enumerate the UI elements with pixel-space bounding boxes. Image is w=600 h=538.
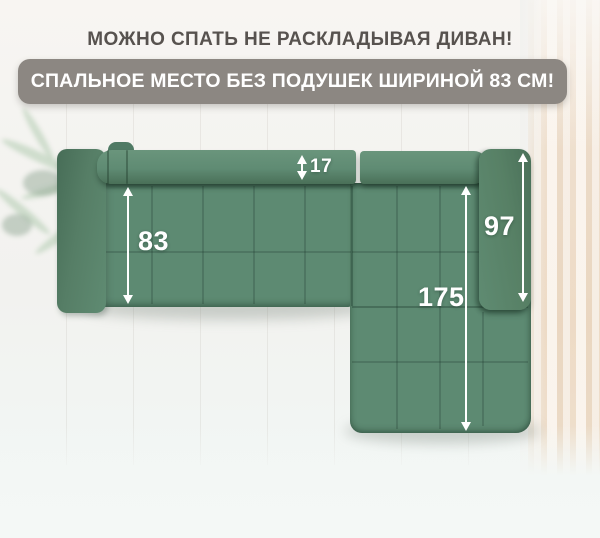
chaise-seam [352, 361, 528, 363]
dimension-value-chaise-length: 175 [418, 282, 465, 313]
arrow-down-icon [123, 295, 133, 304]
dimension-value-sleeping-width: 83 [138, 226, 169, 257]
arrow-shaft [127, 195, 130, 296]
dimension-value-armrest-length: 97 [484, 211, 515, 242]
seat-seam [202, 186, 204, 304]
arrow-shaft [522, 161, 525, 294]
backrest-fold-line [126, 150, 128, 184]
dimension-value-backrest-depth: 17 [310, 156, 332, 178]
promo-badge-label: СПАЛЬНОЕ МЕСТО БЕЗ ПОДУШЕК ШИРИНОЙ 83 СМ… [31, 70, 555, 93]
promo-badge: СПАЛЬНОЕ МЕСТО БЕЗ ПОДУШЕК ШИРИНОЙ 83 СМ… [18, 59, 567, 104]
chaise-seam [482, 312, 484, 426]
dimension-arrow-armrest-length [518, 153, 528, 302]
seat-seam [304, 186, 306, 304]
dimension-arrow-sleeping-width [123, 187, 133, 304]
floor [0, 425, 600, 538]
headline: МОЖНО СПАТЬ НЕ РАСКЛАДЫВАЯ ДИВАН! [0, 29, 600, 51]
product-image: МОЖНО СПАТЬ НЕ РАСКЛАДЫВАЯ ДИВАН! СПАЛЬН… [0, 0, 600, 538]
seat-seam [253, 186, 255, 304]
backrest-shadow [100, 183, 490, 190]
arrow-down-icon [461, 422, 471, 431]
seat-chaise-seam [351, 186, 353, 306]
arrow-down-icon [518, 293, 528, 302]
arrow-shaft [465, 194, 468, 423]
arrow-down-icon [297, 171, 307, 180]
backrest-fold-line [107, 150, 109, 184]
sofa-backrest-right-segment [360, 151, 488, 184]
dimension-arrow-backrest-depth [297, 155, 307, 180]
plant-leaf [2, 214, 32, 236]
